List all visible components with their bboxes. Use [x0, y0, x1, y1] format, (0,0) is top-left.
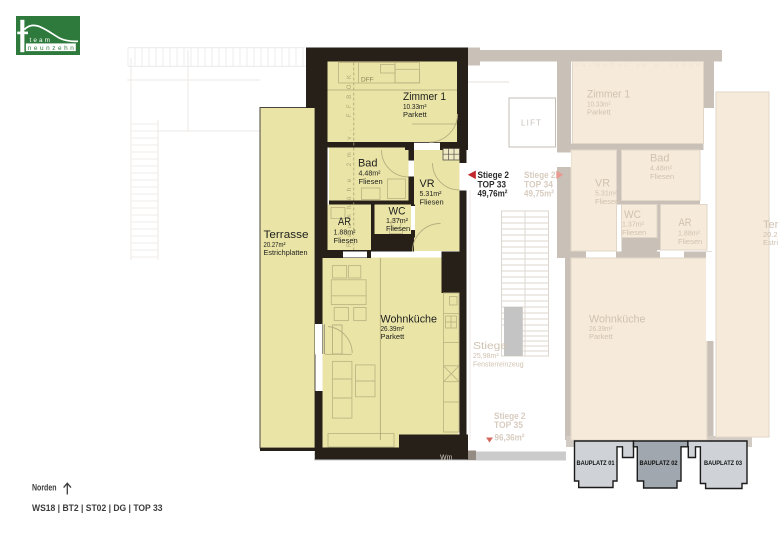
svg-text:Norden: Norden	[32, 483, 57, 493]
svg-text:49,76m²: 49,76m²	[478, 189, 508, 199]
svg-text:Fliesen: Fliesen	[650, 172, 674, 181]
svg-text:TOP 35: TOP 35	[494, 420, 523, 430]
svg-text:Fliesen: Fliesen	[386, 224, 410, 233]
svg-text:Parkett: Parkett	[589, 332, 614, 341]
svg-text:Fliesen: Fliesen	[420, 197, 444, 206]
svg-text:Fliesen: Fliesen	[622, 228, 646, 237]
svg-text:DFF: DFF	[361, 77, 374, 84]
svg-text:team: team	[30, 37, 51, 44]
svg-text:AR: AR	[338, 216, 351, 228]
svg-text:LIFT: LIFT	[521, 119, 542, 128]
svg-text:Parkett: Parkett	[587, 108, 612, 117]
svg-text:Parkett: Parkett	[381, 332, 406, 341]
svg-text:Stiege: Stiege	[473, 341, 508, 352]
svg-text:Parkett: Parkett	[403, 110, 428, 119]
svg-text:49,75m²: 49,75m²	[524, 189, 554, 199]
svg-text:Wm: Wm	[440, 455, 453, 462]
svg-text:BAUPLATZ 01: BAUPLATZ 01	[577, 460, 616, 467]
svg-text:BAUPLATZ 02: BAUPLATZ 02	[640, 460, 679, 467]
svg-text:BAUPLATZ 03: BAUPLATZ 03	[704, 460, 743, 467]
svg-text:Estrichplatten: Estrichplatten	[763, 238, 778, 247]
svg-text:WS18 | BT2 | ST02 | DG | TOP 3: WS18 | BT2 | ST02 | DG | TOP 33	[32, 503, 163, 514]
svg-text:AR: AR	[679, 217, 692, 229]
svg-text:Fliesen: Fliesen	[678, 237, 702, 246]
svg-text:Fensterreinzeug: Fensterreinzeug	[473, 361, 524, 368]
svg-text:96,36m²: 96,36m²	[495, 433, 525, 443]
svg-text:Estrichplatten: Estrichplatten	[264, 248, 308, 257]
svg-text:25,98m²: 25,98m²	[473, 353, 499, 360]
svg-text:Fliesen: Fliesen	[595, 197, 619, 206]
svg-text:Fliesen: Fliesen	[334, 236, 358, 245]
svg-text:Fliesen: Fliesen	[359, 177, 383, 186]
